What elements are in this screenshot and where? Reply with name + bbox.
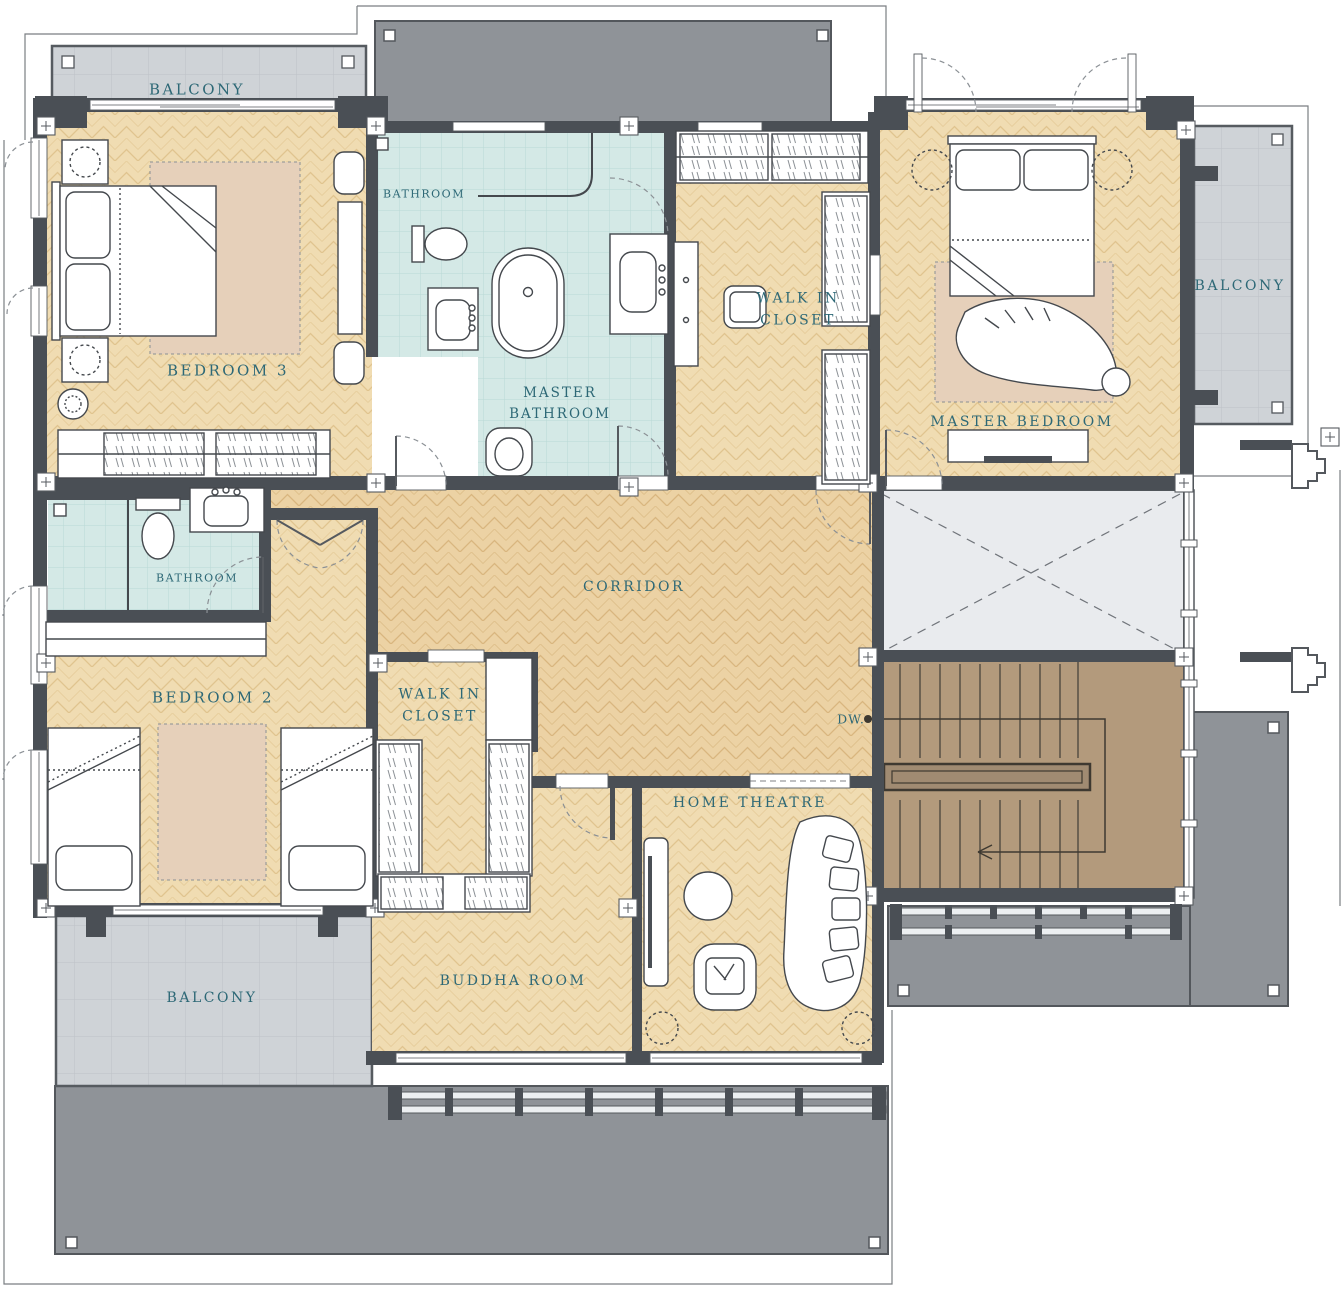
pillow — [289, 846, 365, 890]
label-bathroom-top: BATHROOM — [383, 185, 465, 202]
dumbwaiter-marker — [864, 715, 872, 723]
label-walk-in-closet-1: WALK IN CLOSET — [756, 288, 839, 331]
sink-basin — [436, 300, 470, 340]
console — [338, 202, 362, 334]
corridor-floor-south — [538, 660, 874, 786]
label-dumbwaiter: DW. — [837, 709, 865, 728]
label-home-theatre: HOME THEATRE — [673, 793, 827, 815]
label-bathroom-2: BATHROOM — [156, 569, 238, 586]
bathtub — [492, 248, 564, 358]
armchair-pillow — [706, 958, 744, 994]
plant-pot — [58, 389, 88, 419]
chair — [334, 152, 364, 194]
nightstand — [62, 140, 108, 184]
label-walk-in-closet-2: WALK IN CLOSET — [398, 684, 481, 727]
tv-screen — [644, 838, 668, 986]
bed-headboard — [948, 136, 1096, 144]
stair-void — [878, 490, 1184, 656]
chair — [334, 342, 364, 384]
toilet — [486, 428, 532, 476]
soundbar — [984, 456, 1052, 463]
round-table — [684, 872, 732, 920]
label-master-bathroom: MASTER BATHROOM — [509, 383, 611, 425]
nightstand — [62, 338, 108, 382]
toilet-bowl — [142, 513, 174, 559]
stair-handrail — [884, 764, 1090, 790]
label-buddha-room: BUDDHA ROOM — [440, 971, 587, 993]
pillow — [66, 264, 110, 330]
label-corridor: CORRIDOR — [583, 577, 685, 599]
label-balcony-bottom: BALCONY — [167, 988, 258, 1010]
cabinet — [486, 658, 532, 740]
bedroom-2-vestibule-floor — [265, 510, 372, 622]
pillow — [66, 192, 110, 258]
scupper-details — [1292, 444, 1325, 692]
pillow — [1024, 150, 1088, 190]
pillow — [956, 150, 1020, 190]
label-balcony-top: BALCONY — [149, 78, 245, 101]
side-table — [1102, 368, 1130, 396]
sink-basin — [204, 496, 248, 526]
toilet-tank — [412, 226, 424, 262]
toilet-bowl — [425, 228, 467, 260]
floor-plan-drawing — [0, 0, 1343, 1291]
sink-basin — [620, 252, 656, 312]
label-bedroom-3: BEDROOM 3 — [167, 359, 289, 382]
shower-fixture — [376, 138, 388, 150]
label-balcony-right: BALCONY — [1195, 276, 1286, 298]
label-bedroom-2: BEDROOM 2 — [152, 686, 274, 709]
bedroom-2-rug — [158, 724, 266, 880]
shower-fixture — [54, 504, 66, 516]
balcony-right-area — [1192, 126, 1292, 424]
floor-plan: BALCONY BATHROOM BEDROOM 3 MASTER BATHRO… — [0, 0, 1343, 1291]
label-master-bedroom: MASTER BEDROOM — [930, 412, 1113, 434]
toilet-tank — [136, 498, 180, 510]
bed-headboard — [52, 182, 60, 340]
dresser — [674, 242, 698, 366]
pillow — [56, 846, 132, 890]
